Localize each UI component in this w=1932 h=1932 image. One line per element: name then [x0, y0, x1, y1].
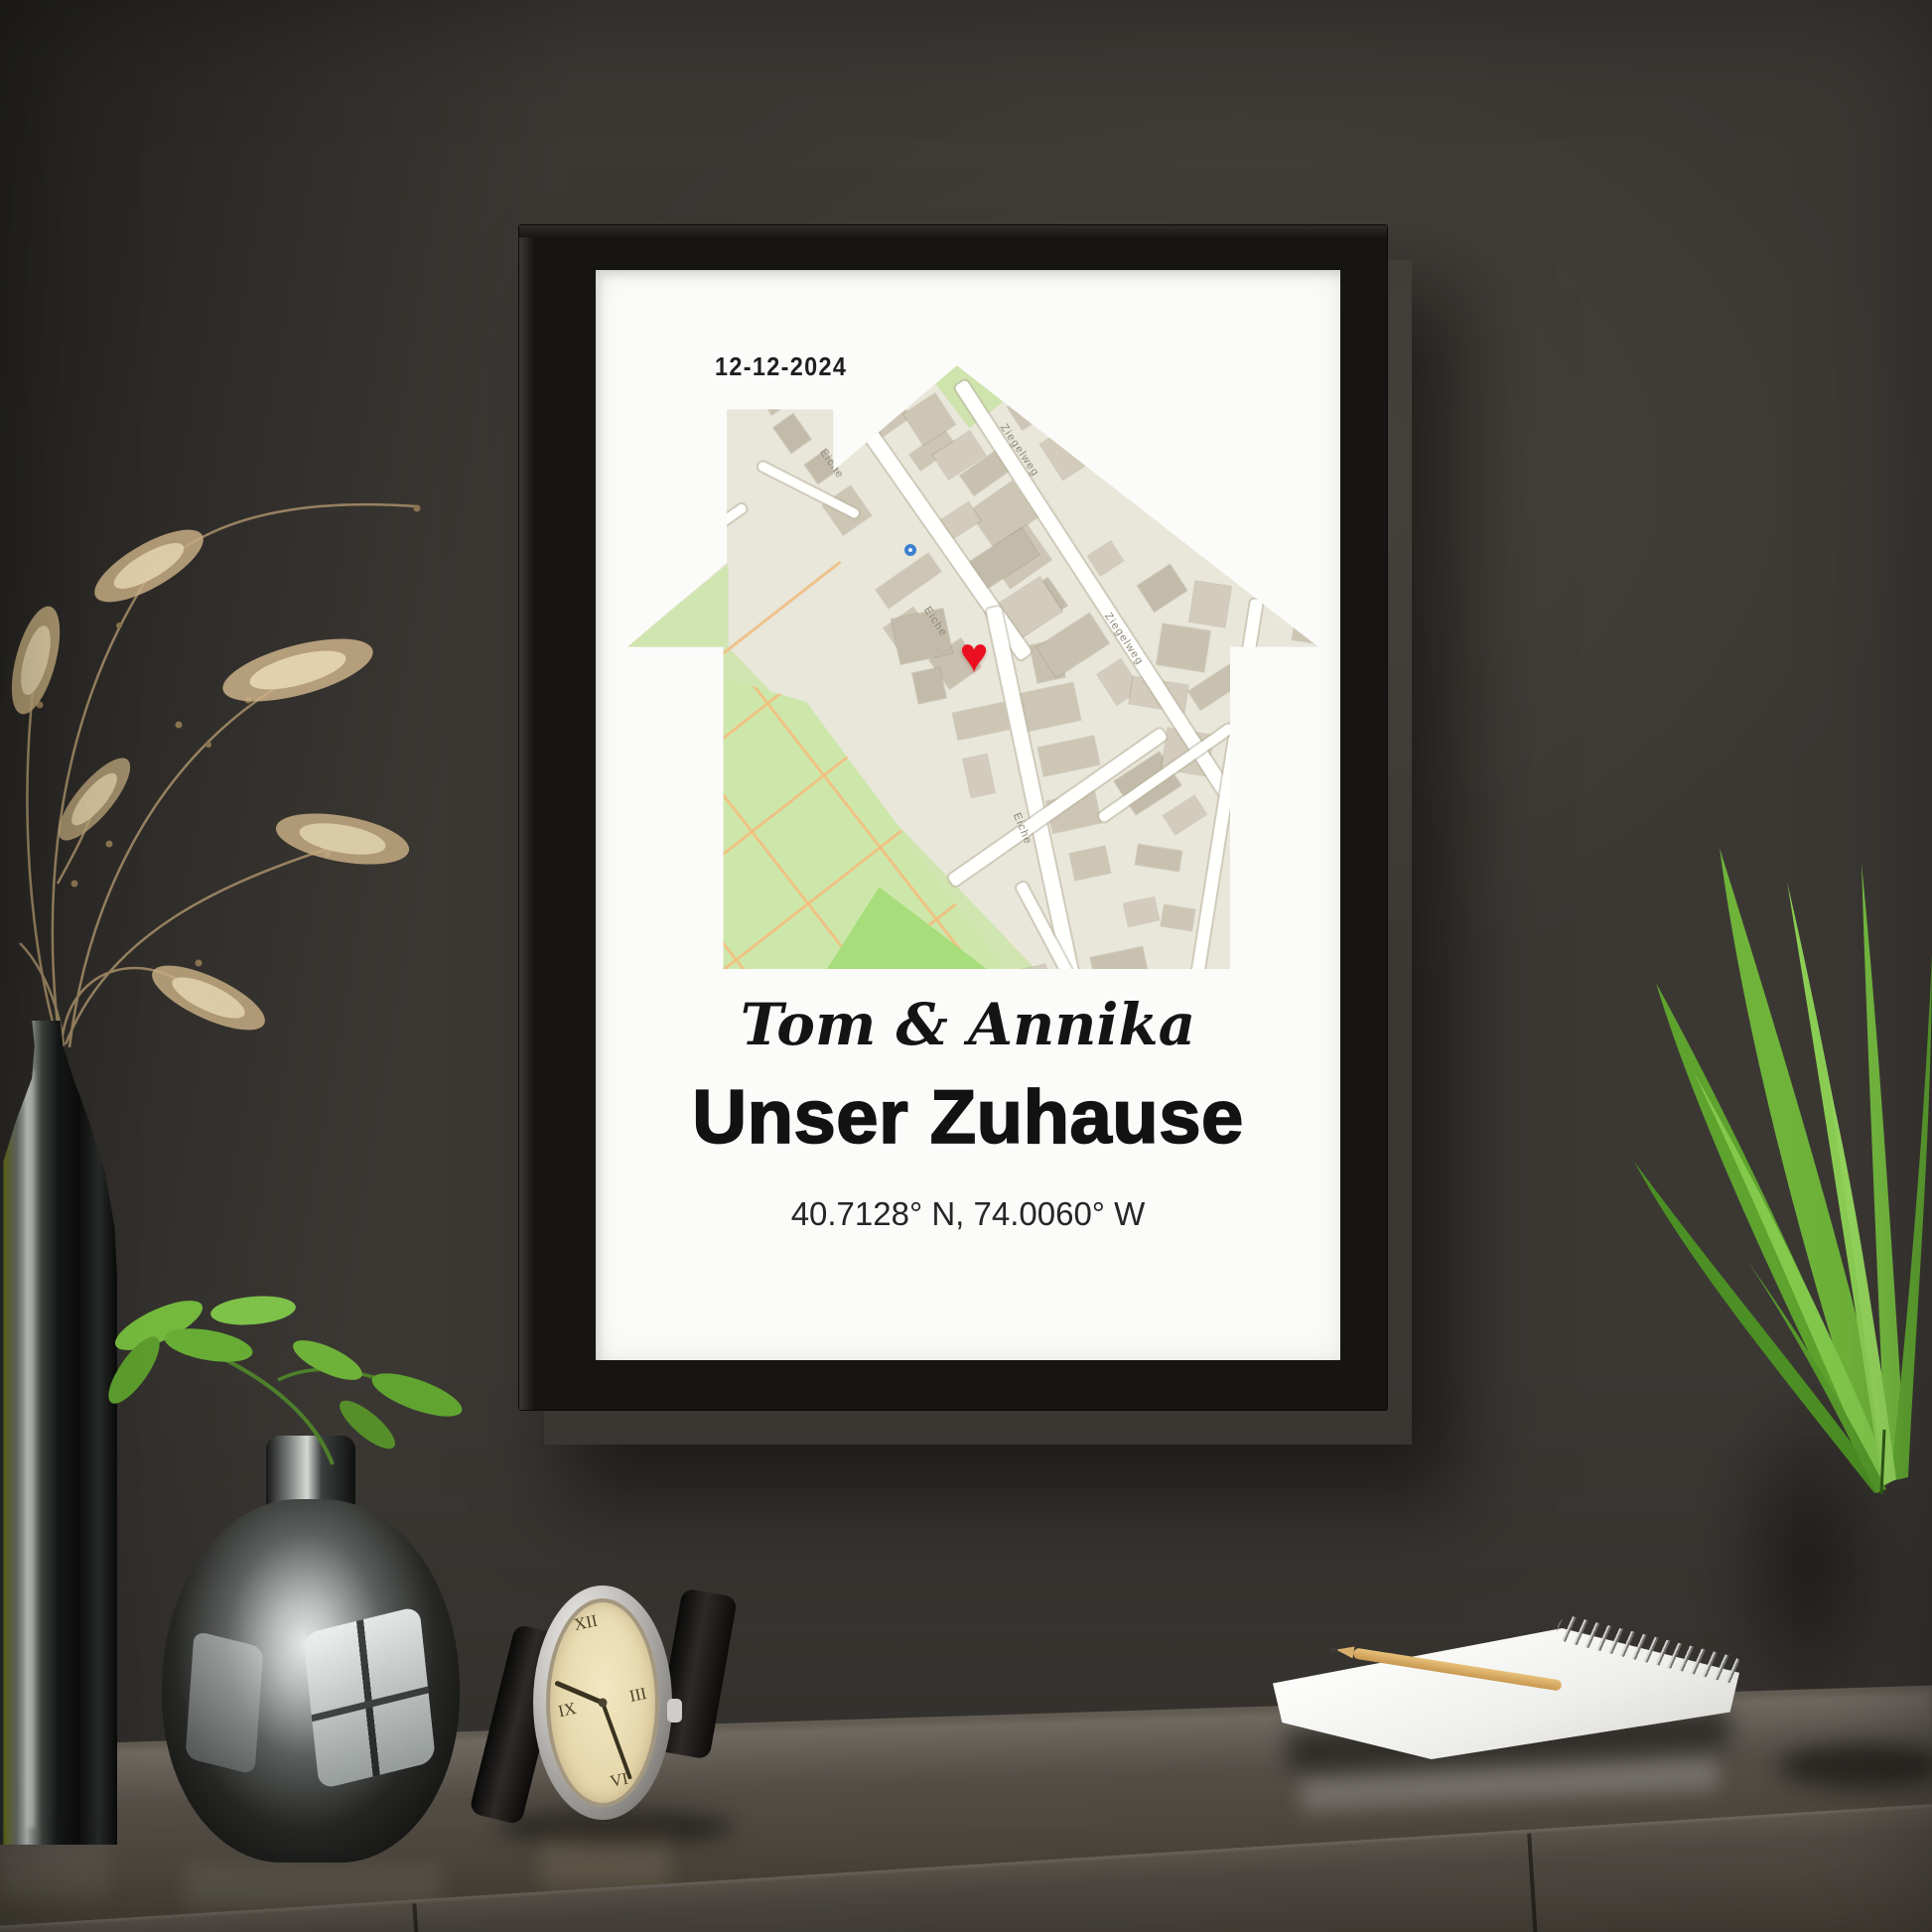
watch-numeral: IX	[556, 1699, 578, 1722]
potted-plant-leaves	[1628, 834, 1932, 1549]
map-poi-dot	[904, 544, 916, 556]
bottle-reflection	[0, 1845, 109, 1900]
vase-window-reflection	[303, 1605, 436, 1790]
street-label: Eiche	[817, 447, 846, 481]
poster-coordinates: 40.7128° N, 74.0060° W	[596, 1195, 1340, 1233]
street-label: Eiche	[921, 605, 949, 639]
map-building	[1232, 909, 1280, 950]
map-building	[1254, 862, 1311, 893]
watch-dial: XIIIIIVIIX	[546, 1598, 659, 1807]
cabinet-seam	[1527, 1834, 1549, 1932]
watch-numeral: III	[627, 1684, 648, 1707]
map-building	[1267, 772, 1325, 825]
heart-location-marker: ♥	[959, 632, 988, 681]
poster: 12-12-2024 EicheEicheEicheZiegelwegZiege…	[596, 270, 1340, 1360]
map-building	[877, 339, 920, 378]
house-shaped-map: EicheEicheEicheZiegelwegZiegelwegZiegelw…	[625, 361, 1320, 969]
frame-top-face	[519, 225, 1387, 237]
watch-crown	[667, 1699, 682, 1723]
spiral-notebook	[1273, 1628, 1749, 1787]
map-building	[1265, 824, 1331, 882]
watch-minute-hand	[601, 1702, 632, 1779]
map-building	[1308, 651, 1347, 689]
watch-numeral: XII	[572, 1611, 599, 1635]
map-building	[1248, 750, 1311, 785]
vase-body	[162, 1499, 460, 1863]
watch-case: XIIIIIVIIX	[533, 1586, 672, 1820]
street-label: Eiche	[1011, 811, 1035, 847]
wristwatch: XIIIIIVIIX	[482, 1584, 750, 1842]
watch-numeral: VI	[609, 1768, 630, 1791]
watch-dial-face: XIIIIIVIIX	[525, 1588, 679, 1816]
map-building	[1243, 736, 1296, 784]
bottle-highlight	[27, 1070, 35, 1829]
map-building	[1239, 908, 1302, 965]
vase-window-reflection	[186, 1630, 264, 1774]
street-label: Ziegelweg	[1239, 683, 1261, 745]
street-label: Ziegelweg	[1102, 611, 1146, 667]
poster-date: 12-12-2024	[715, 351, 847, 382]
map-building	[1269, 696, 1325, 737]
street-label: Ziegelweg	[998, 422, 1041, 479]
scene: 12-12-2024 EicheEicheEicheZiegelwegZiege…	[0, 0, 1932, 1932]
poster-title: Unser Zuhause	[596, 1074, 1340, 1161]
cabinet-seam	[412, 1903, 434, 1932]
green-sprig	[40, 1221, 655, 1539]
map-building	[1236, 795, 1279, 845]
couple-names: Tom & Annika	[596, 991, 1340, 1058]
